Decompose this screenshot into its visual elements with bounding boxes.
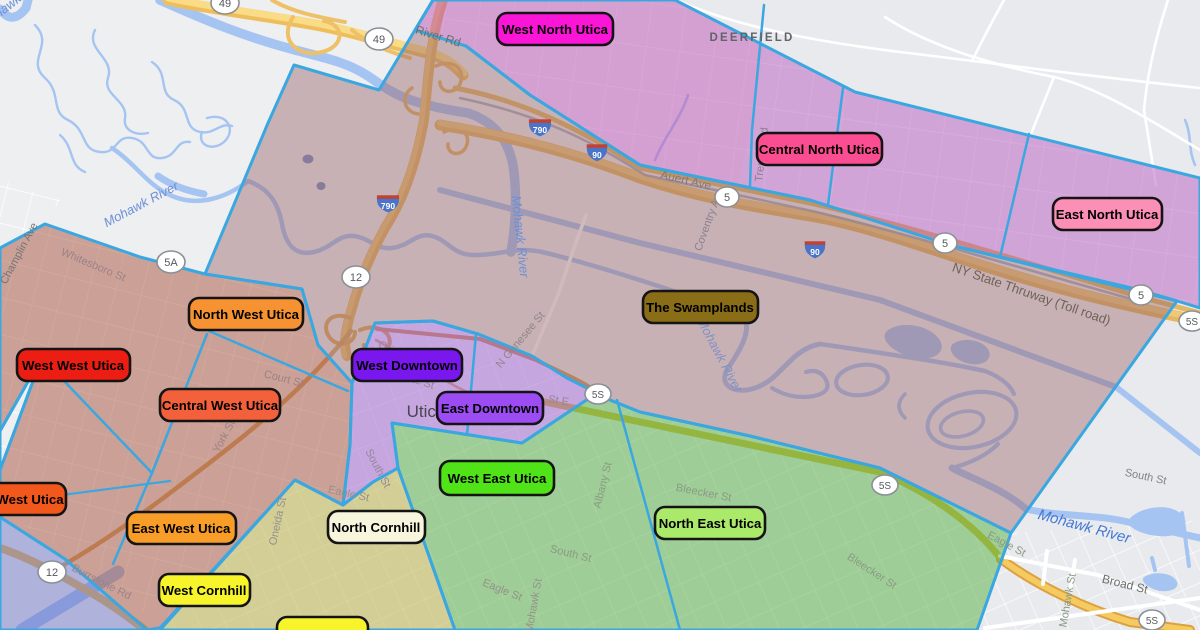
- svg-text:North West Utica: North West Utica: [193, 307, 300, 322]
- svg-text:West West Utica: West West Utica: [22, 358, 125, 373]
- svg-text:West East Utica: West East Utica: [448, 471, 547, 486]
- svg-text:Central West Utica: Central West Utica: [162, 398, 279, 413]
- svg-text:5: 5: [942, 238, 948, 250]
- svg-text:5S: 5S: [592, 390, 605, 401]
- svg-text:5: 5: [1138, 290, 1144, 302]
- svg-text:49: 49: [373, 34, 385, 46]
- svg-text:West Cornhill: West Cornhill: [162, 583, 247, 598]
- svg-text:790: 790: [381, 201, 395, 211]
- svg-text:North Cornhill: North Cornhill: [332, 520, 421, 535]
- svg-text:East North Utica: East North Utica: [1056, 207, 1159, 222]
- svg-text:5A: 5A: [164, 257, 178, 269]
- svg-text:90: 90: [810, 247, 820, 257]
- svg-text:East West Utica: East West Utica: [132, 521, 231, 536]
- svg-text:790: 790: [533, 125, 547, 135]
- svg-text:The Swamplands: The Swamplands: [646, 300, 754, 315]
- svg-text:49: 49: [219, 0, 231, 10]
- svg-text:12: 12: [350, 272, 362, 284]
- svg-text:West Utica: West Utica: [0, 492, 64, 507]
- svg-text:North East Utica: North East Utica: [659, 516, 762, 531]
- svg-text:5: 5: [724, 192, 730, 204]
- svg-text:5S: 5S: [879, 481, 892, 492]
- svg-text:East Downtown: East Downtown: [441, 401, 539, 416]
- svg-text:DEERFIELD: DEERFIELD: [710, 32, 795, 44]
- svg-text:90: 90: [592, 150, 602, 160]
- svg-text:5S: 5S: [1186, 317, 1199, 328]
- svg-text:Central North Utica: Central North Utica: [759, 142, 880, 157]
- svg-text:5S: 5S: [1146, 616, 1159, 627]
- svg-text:West North Utica: West North Utica: [502, 22, 609, 37]
- svg-text:12: 12: [46, 567, 58, 579]
- svg-text:West Downtown: West Downtown: [356, 358, 458, 373]
